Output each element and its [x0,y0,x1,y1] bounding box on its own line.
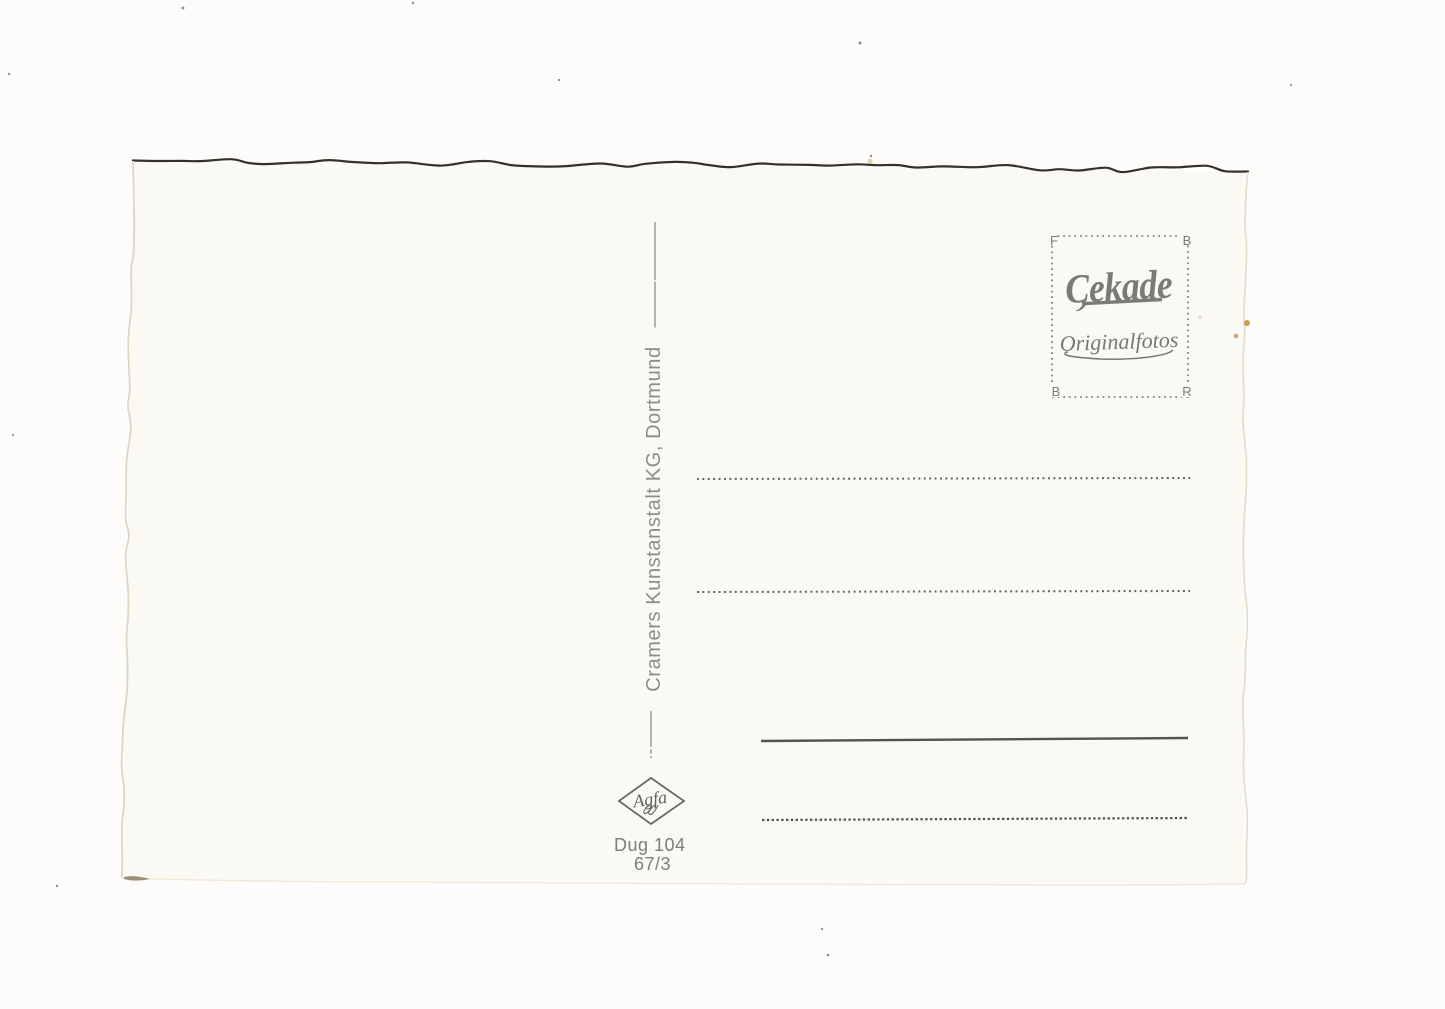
svg-text:F: F [1050,233,1058,248]
svg-text:Cramers Kunstanstalt KG, Dortm: Cramers Kunstanstalt KG, Dortmund [643,346,665,691]
svg-text:B: B [1052,384,1061,399]
svg-text:Originalfotos: Originalfotos [1059,327,1178,356]
svg-text:R: R [1182,384,1191,399]
svg-text:B: B [1183,233,1192,248]
svg-text:Dug 104: Dug 104 [614,835,686,855]
svg-text:67/3: 67/3 [634,854,671,874]
svg-text:Cekade: Cekade [1064,262,1174,312]
